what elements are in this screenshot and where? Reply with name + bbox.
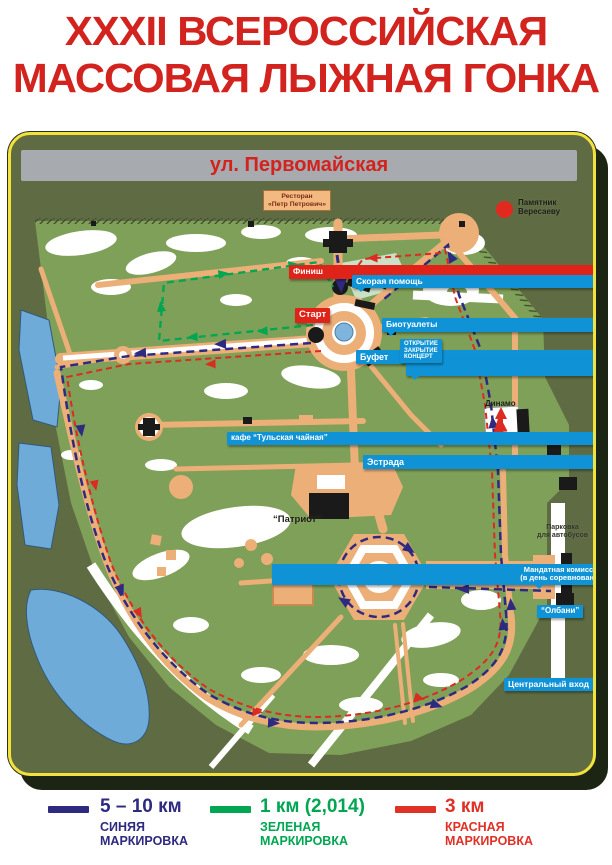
poster-title-line2: МАССОВАЯ ЛЫЖНАЯ ГОНКА	[0, 55, 612, 102]
legend-blue-marking: СИНЯЯ МАРКИРОВКА	[100, 820, 188, 848]
green-route-swatch	[210, 806, 251, 813]
restaurant-label: Ресторан «Петр Петрович»	[263, 190, 331, 211]
cafe-label: кафе “Тульская чайная”	[227, 432, 596, 445]
central-entrance-label: Центральный вход	[504, 678, 596, 692]
bus-parking-label: Парковка для автобусов	[537, 524, 588, 540]
blue-route-swatch	[48, 806, 89, 813]
opening-closing-label: ОТКРЫТИЕ ЗАКРЫТИЕ КОНЦЕРТ	[400, 339, 442, 363]
legend-green-distance: 1 км (2,014)	[260, 796, 365, 818]
mandate-commission-label: Мандатная комиссия (в день соревнований)	[272, 564, 596, 585]
church-building	[135, 413, 163, 441]
stage-label: Эстрада	[363, 455, 596, 469]
monument-label: Памятник Вересаеву	[518, 199, 560, 217]
patriot-label: “Патриот”	[273, 515, 321, 526]
legend-blue-distance: 5 – 10 км	[100, 796, 182, 818]
albany-label: “Олбани”	[537, 605, 583, 618]
start-label: Старт	[295, 308, 330, 323]
route-legend: 5 – 10 км СИНЯЯ МАРКИРОВКА 1 км (2,014) …	[0, 792, 612, 862]
park-map-panel: ул. Первомайская Ресторан «Петр Петрович…	[8, 132, 596, 776]
red-route-swatch	[395, 806, 436, 813]
dynamo-label: Динамо	[485, 400, 516, 409]
poster-title-line1: XXXII ВСЕРОССИЙСКАЯ	[0, 8, 612, 55]
ambulance-label: Скорая помощь	[352, 275, 596, 289]
street-name: ул. Первомайская	[210, 154, 388, 176]
street-bar: ул. Первомайская	[21, 150, 577, 181]
biotoilets-label: Биотуалеты	[382, 318, 596, 332]
legend-red-marking: КРАСНАЯ МАРКИРОВКА	[445, 820, 533, 848]
poster-title: XXXII ВСЕРОССИЙСКАЯ МАССОВАЯ ЛЫЖНАЯ ГОНК…	[0, 8, 612, 102]
legend-green-marking: ЗЕЛЕНАЯ МАРКИРОВКА	[260, 820, 348, 848]
legend-red-distance: 3 км	[445, 796, 484, 818]
monument-dot-icon	[496, 201, 513, 218]
